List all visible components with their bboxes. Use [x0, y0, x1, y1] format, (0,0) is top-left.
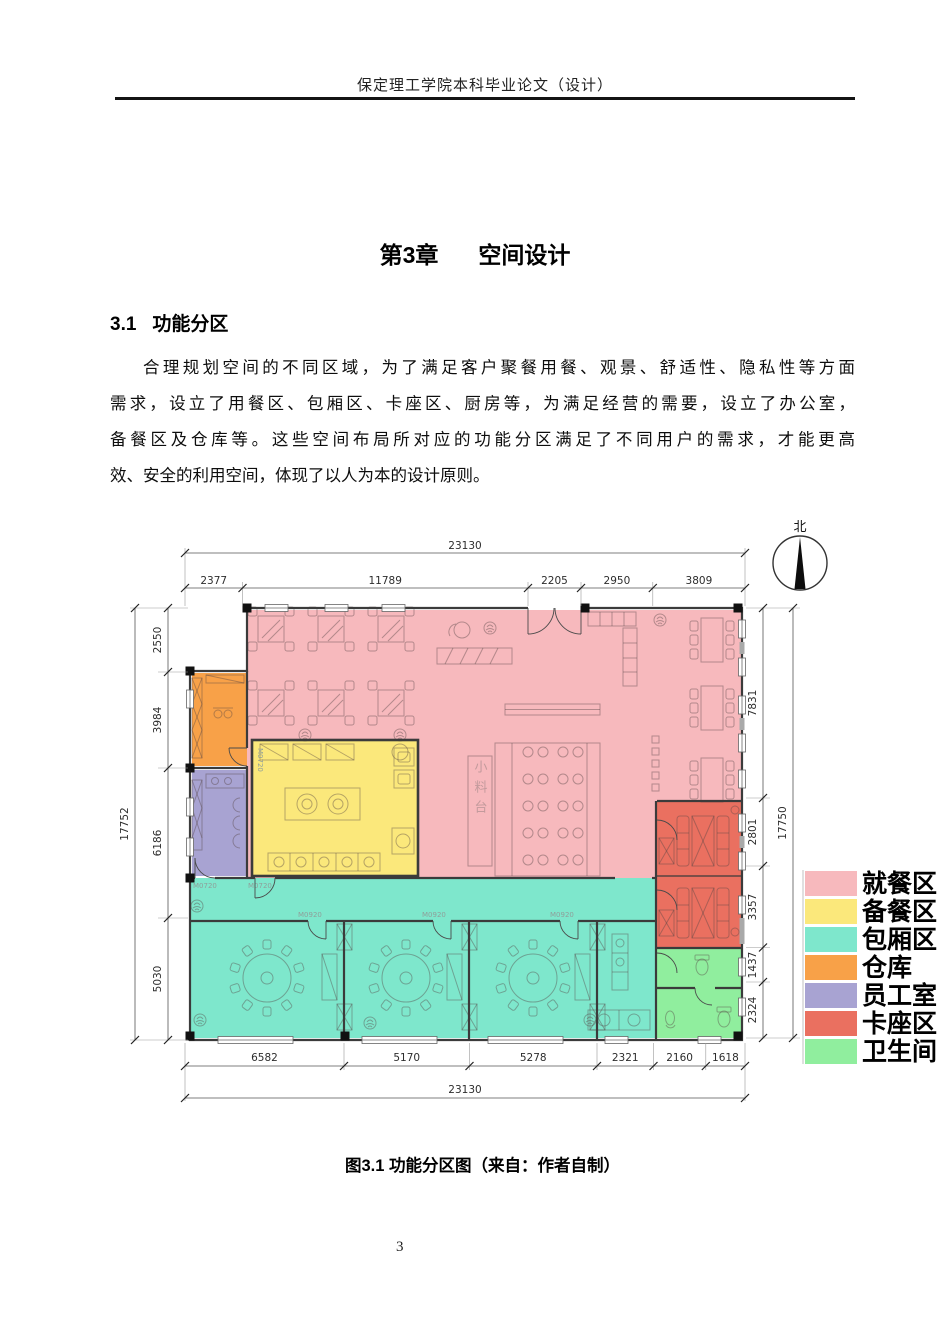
dim-right-seg: 1437 — [747, 952, 759, 979]
section-title-text: 功能分区 — [152, 314, 228, 335]
legend-label: 卡座区 — [862, 1009, 937, 1038]
legend-item: 就餐区 — [805, 870, 937, 898]
dim-top-seg: 3809 — [686, 575, 713, 587]
header-rule — [115, 97, 855, 100]
legend-item: 卡座区 — [805, 1009, 937, 1038]
dim-bottom-seg: 2160 — [666, 1052, 693, 1064]
door-label: M0720 — [256, 748, 264, 772]
condiment-station-label: 小料台 — [473, 760, 488, 820]
legend-swatch — [805, 955, 857, 980]
legend-label: 员工室 — [862, 981, 937, 1010]
dim-bottom-seg: 5170 — [393, 1052, 420, 1064]
legend-swatch — [805, 1039, 857, 1064]
dim-left-seg: 6186 — [152, 829, 164, 856]
chapter-title: 第3章空间设计 — [0, 236, 950, 270]
dim-left-seg: 3984 — [152, 706, 164, 733]
dim-top-total: 23130 — [448, 540, 481, 552]
dim-bottom-seg: 1618 — [712, 1052, 739, 1064]
zone-private-rooms — [190, 878, 655, 1038]
legend-item: 卫生间 — [805, 1038, 937, 1066]
paragraph-line: 备餐区及仓库等。这些空间布局所对应的功能分区满足了不同用户的需求，才能更高 — [110, 422, 855, 458]
dim-top-seg: 2205 — [541, 575, 568, 587]
north-label: 北 — [793, 519, 806, 534]
chapter-title-text: 空间设计 — [478, 242, 570, 268]
legend-label: 卫生间 — [862, 1038, 937, 1066]
legend-item: 包厢区 — [805, 925, 937, 954]
door-label: M0920 — [298, 911, 322, 919]
legend: 就餐区 备餐区 包厢区 仓库 员工室 卡座区 — [805, 870, 937, 1066]
door-label: M0920 — [422, 911, 446, 919]
figure-caption: 图3.1 功能分区图（来自：作者自制） — [110, 1152, 855, 1176]
north-arrow-icon: 北 — [773, 519, 827, 590]
floor-plan-figure: 小料台 M0920 M0920 M0920 M0720 M0720 M0720 — [100, 498, 950, 1110]
legend-swatch — [805, 899, 857, 924]
legend-label: 备餐区 — [861, 898, 937, 926]
page-header: 保定理工学院本科毕业论文（设计） — [115, 74, 855, 95]
body-paragraph: 合理规划空间的不同区域，为了满足客户聚餐用餐、观景、舒适性、隐私性等方面 需求，… — [110, 350, 855, 510]
legend-label: 就餐区 — [862, 870, 937, 898]
dim-top-seg: 2377 — [200, 575, 227, 587]
legend-item: 员工室 — [805, 981, 937, 1010]
dim-bottom-total: 23130 — [448, 1084, 481, 1096]
legend-item: 备餐区 — [805, 898, 937, 926]
page-number: 3 — [396, 1239, 404, 1256]
legend-swatch — [805, 927, 857, 952]
legend-label: 仓库 — [861, 953, 912, 982]
paragraph-line: 需求，设立了用餐区、包厢区、卡座区、厨房等，为满足经营的需要，设立了办公室， — [110, 386, 855, 422]
legend-swatch — [805, 1011, 857, 1036]
dim-left-seg: 2550 — [152, 627, 164, 654]
door-label: M0720 — [248, 882, 272, 890]
thesis-page: 保定理工学院本科毕业论文（设计） 第3章空间设计 3.1功能分区 合理规划空间的… — [0, 0, 950, 1344]
dim-top-seg: 2950 — [604, 575, 631, 587]
door-label: M0720 — [193, 882, 217, 890]
paragraph-line: 合理规划空间的不同区域，为了满足客户聚餐用餐、观景、舒适性、隐私性等方面 — [110, 350, 855, 386]
dim-right-seg: 3357 — [747, 894, 759, 921]
section-heading: 3.1功能分区 — [110, 309, 228, 336]
door-label: M0920 — [550, 911, 574, 919]
legend-label: 包厢区 — [862, 925, 937, 954]
dim-right-seg: 7831 — [747, 690, 759, 717]
legend-swatch — [805, 983, 857, 1008]
dim-right-seg: 2324 — [747, 996, 759, 1023]
paragraph-line: 效、安全的利用空间，体现了以人为本的设计原则。 — [110, 458, 855, 494]
dim-right-total: 17750 — [777, 806, 789, 839]
dim-bottom-seg: 6582 — [251, 1052, 278, 1064]
section-number: 3.1 — [110, 314, 136, 335]
dim-right-seg: 2801 — [747, 819, 759, 846]
dim-bottom-seg: 5278 — [520, 1052, 547, 1064]
chapter-number: 第3章 — [380, 242, 439, 268]
zone-fills — [190, 610, 742, 1038]
legend-item: 仓库 — [805, 953, 912, 982]
dim-top-seg: 11789 — [368, 575, 401, 587]
dim-left-total: 17752 — [119, 807, 131, 840]
dim-bottom-seg: 2321 — [612, 1052, 639, 1064]
legend-swatch — [805, 871, 857, 896]
dim-left-seg: 5030 — [152, 966, 164, 993]
